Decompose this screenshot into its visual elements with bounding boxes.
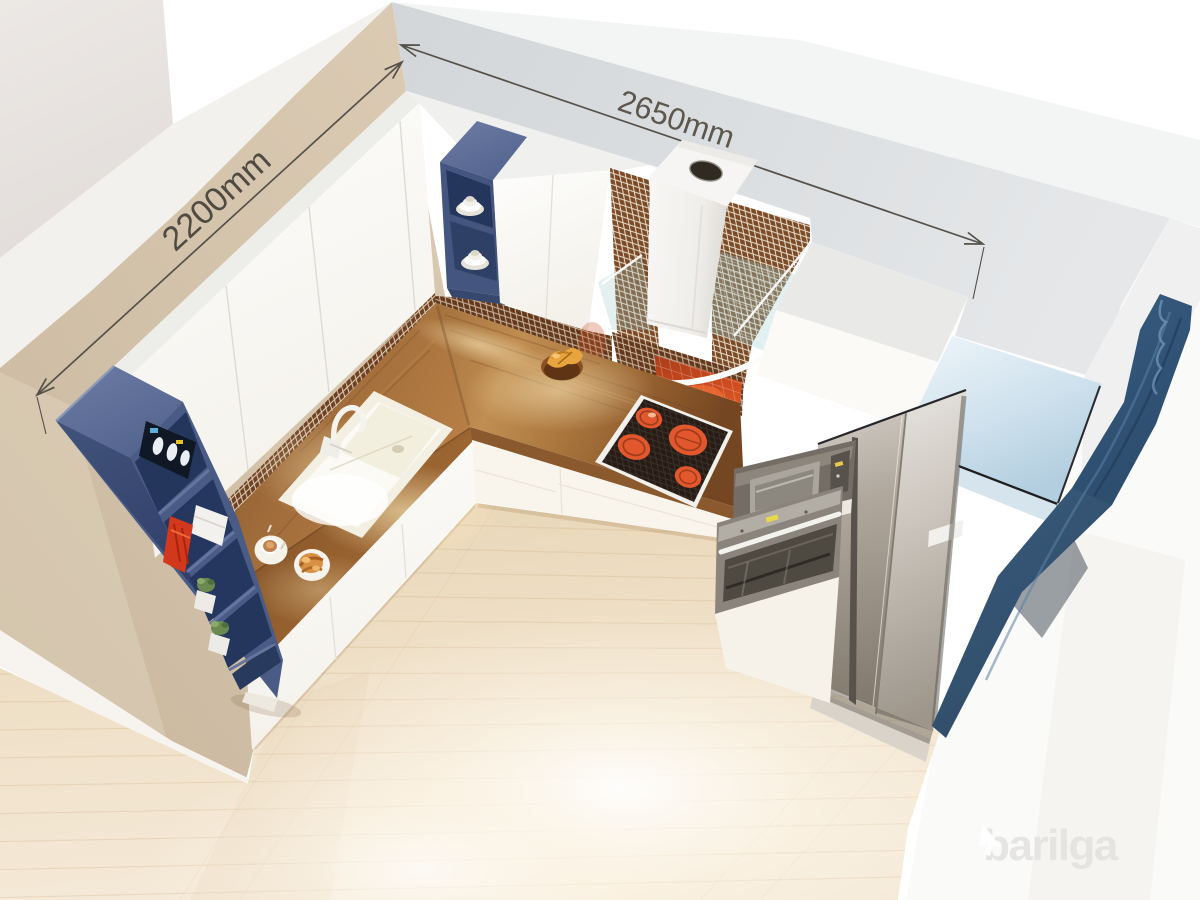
svg-text:barilga: barilga	[983, 821, 1119, 870]
